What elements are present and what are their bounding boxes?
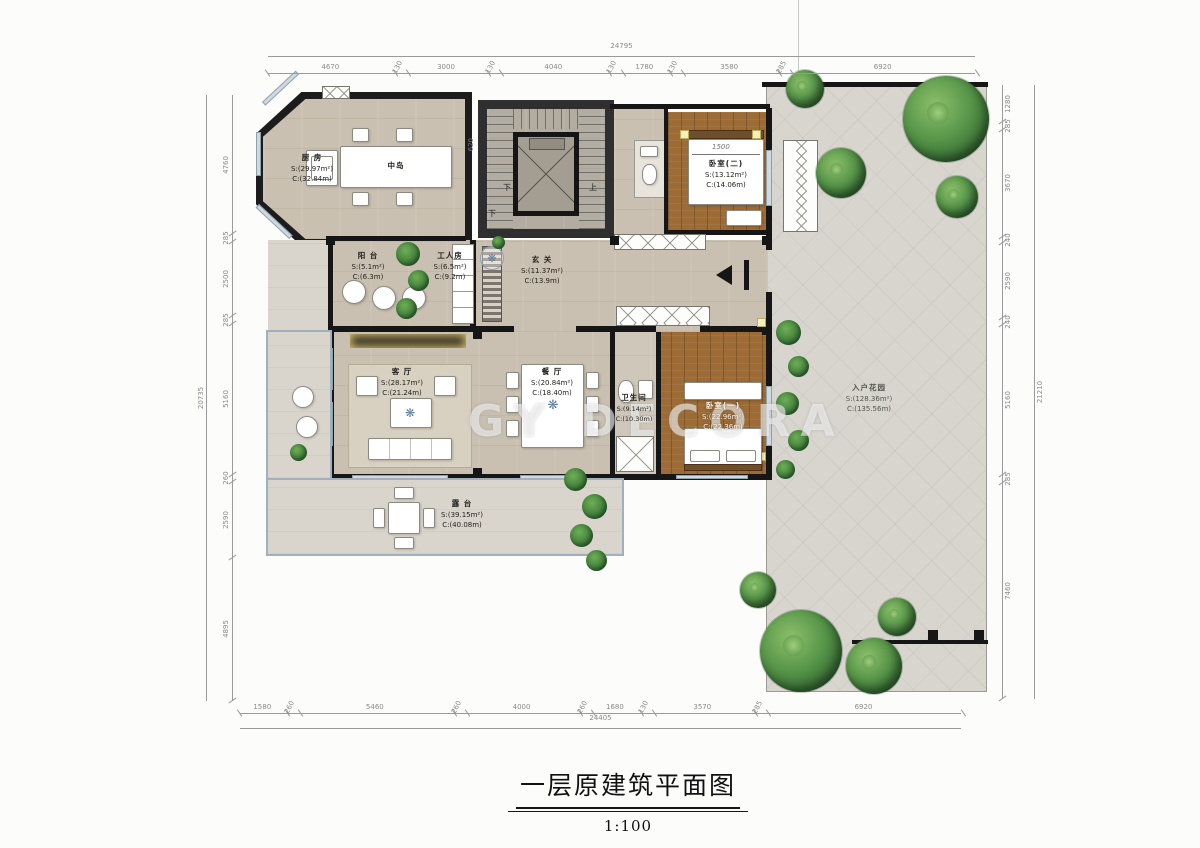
dim-seg: 1580 [240, 698, 285, 713]
stool [396, 128, 413, 142]
room-name: 中岛 [368, 160, 424, 172]
floor-medallion-icon: ❋ [480, 246, 504, 270]
dim-seg: 260 [216, 475, 232, 483]
dim-seg: 285 [777, 58, 790, 73]
column [762, 236, 771, 245]
dim-seg: 6920 [766, 698, 961, 713]
room-label-garden: 入户花园 S:(128.36m²) C:(135.56m) [834, 382, 904, 415]
room-label-bath: 卫生间 S:(9.14m²) C:(10.30m) [610, 392, 658, 424]
dim-seg: 6920 [790, 58, 975, 73]
room-label-kitchen: 厨 房 S:(29.97m²) C:(32.84m) [280, 152, 344, 185]
room-area-c: C:(14.06m) [692, 180, 760, 191]
drawing-scale: 1:100 [508, 817, 748, 835]
outdoor-chair [373, 508, 385, 528]
dim-right-total: 21210 [1034, 85, 1043, 699]
entry-door-bar [744, 260, 749, 290]
room-area-s: S:(9.14m²) [610, 404, 658, 414]
tree-large [903, 76, 989, 162]
dim-seg: 2590 [1003, 243, 1019, 318]
room-name: 餐 厅 [520, 366, 584, 378]
bush [586, 550, 607, 571]
armchair [434, 376, 456, 396]
dim-seg: 7460 [1003, 483, 1019, 699]
floor-plan: 620 780 下 上 下 1500 ❋ [0, 0, 1200, 848]
corner-marker [680, 130, 689, 139]
round-chair [342, 280, 366, 304]
dim-seg: 260 [452, 698, 465, 713]
pouf [296, 416, 318, 438]
room-area-s: S:(128.36m²) [834, 394, 904, 405]
room-area-s: S:(6.5m²) [424, 262, 476, 273]
dim-seg: 1680 [591, 698, 638, 713]
dim-value: 21210 [1036, 381, 1044, 403]
room-area-c: C:(13.9m) [510, 276, 574, 287]
dim-620: 620 [467, 138, 475, 151]
tree [816, 148, 866, 198]
stool [352, 192, 369, 206]
room-area-c: C:(6.3m) [340, 272, 396, 283]
room-area-s: S:(39.15m²) [430, 510, 494, 521]
stair-up-label: 上 [589, 182, 597, 193]
room-area-c: C:(18.40m) [520, 388, 584, 399]
dim-seg: 5160 [1003, 325, 1019, 474]
room-name: 卧室(一) [686, 400, 760, 412]
room-name: 卫生间 [610, 392, 658, 404]
dim-seg: 2590 [216, 482, 232, 558]
medallion-glyph: ❋ [405, 406, 415, 420]
range-hood-hatch [322, 86, 350, 99]
closet-hatch [616, 306, 710, 326]
dim-seg: 260 [285, 698, 298, 713]
room-label-living: 客 厅 S:(28.17m²) C:(21.24m) [370, 366, 434, 399]
table-medallion-icon: ❋ [400, 403, 420, 423]
pillow [726, 450, 756, 462]
stair-down-label: 下 [503, 182, 511, 193]
wall [328, 236, 333, 332]
bush [776, 460, 795, 479]
room-name: 厨 房 [280, 152, 344, 164]
column [326, 236, 335, 245]
dining-chair [586, 372, 599, 389]
wall [332, 326, 478, 332]
room-label-bed1: 卧室(一) S:(22.96m²) C:(22.36m) [686, 400, 760, 433]
column [473, 468, 482, 477]
bed-headboard [684, 464, 762, 471]
gate-post [974, 630, 984, 643]
gate-post [928, 630, 938, 643]
tree [786, 70, 824, 108]
drawing-title: 一层原建筑平面图 [516, 766, 740, 809]
dining-chair [586, 420, 599, 437]
dim-seg: 130 [486, 58, 499, 73]
bed [684, 428, 762, 468]
column [762, 326, 771, 335]
room-name: 卧室(二) [692, 158, 760, 170]
room-label-dining: 餐 厅 S:(20.84m²) C:(18.40m) [520, 366, 584, 399]
outdoor-chair [394, 487, 414, 499]
plant [290, 444, 307, 461]
wall [478, 326, 514, 332]
stool [352, 128, 369, 142]
room-area-c: C:(135.56m) [834, 404, 904, 415]
stool [396, 192, 413, 206]
bedroom1-window [766, 386, 772, 446]
bush [570, 524, 593, 547]
dim-seg: 3000 [406, 58, 486, 73]
bush [788, 356, 809, 377]
dim-seg: 4670 [268, 58, 393, 73]
room-name: 阳 台 [340, 250, 396, 262]
dim-seg: 285 [216, 234, 232, 242]
room-area-s: S:(29.97m²) [280, 164, 344, 175]
title-block: 一层原建筑平面图 1:100 [508, 766, 748, 835]
room-label-maid: 工人房 S:(6.5m²) C:(9.2m) [424, 250, 476, 283]
dim-seg: 3580 [681, 58, 777, 73]
dim-value: 20735 [197, 387, 205, 409]
wall [576, 326, 612, 332]
bush [582, 494, 607, 519]
dresser [726, 210, 762, 226]
room-name: 玄 关 [510, 254, 574, 266]
dim-value: 24405 [589, 715, 611, 723]
dim-seg: 130 [607, 58, 620, 73]
room-label-island: 中岛 [368, 160, 424, 172]
bush [776, 392, 799, 415]
tree [846, 638, 902, 694]
dim-seg: 2500 [216, 242, 232, 315]
pouf [292, 386, 314, 408]
dim-bottom-segments: 1580 260 5460 260 4000 260 1680 130 3570… [240, 698, 961, 714]
room-name: 客 厅 [370, 366, 434, 378]
wall [612, 326, 656, 332]
bush [396, 242, 420, 266]
room-label-foyer: 玄 关 S:(11.37m²) C:(13.9m) [510, 254, 574, 287]
tree [740, 572, 776, 608]
tree [878, 598, 916, 636]
dim-seg: 260 [578, 698, 591, 713]
tree-large [760, 610, 842, 692]
room-label-terrace: 露 台 S:(39.15m²) C:(40.08m) [430, 498, 494, 531]
room-area-c: C:(21.24m) [370, 388, 434, 399]
balcony-floor [268, 240, 330, 332]
room-name: 入户花园 [834, 382, 904, 394]
tv-console [350, 334, 466, 348]
room-area-s: S:(5.1m²) [340, 262, 396, 273]
room-label-balcony: 阳 台 S:(5.1m²) C:(6.3m) [340, 250, 396, 283]
closet-hatch [614, 234, 706, 250]
dim-seg: 4760 [216, 95, 232, 234]
outdoor-table [388, 502, 420, 534]
bush [788, 430, 809, 451]
sink [640, 146, 658, 157]
dim-left-segments: 4760 285 2500 285 5160 260 2590 4895 [216, 95, 233, 701]
elevator-cab [529, 138, 565, 150]
dim-seg: 4000 [465, 698, 578, 713]
dim-seg: 285 [753, 698, 766, 713]
round-chair [372, 286, 396, 310]
dim-right-segments: 1280 285 3670 240 2590 240 5160 285 7460 [1002, 85, 1019, 699]
room-label-bed2: 卧室(二) S:(13.12m²) C:(14.06m) [692, 158, 760, 191]
pillow [690, 450, 720, 462]
room-area-c: C:(22.36m) [686, 422, 760, 433]
room-area-s: S:(13.12m²) [692, 170, 760, 181]
stairs-top-run [513, 109, 579, 129]
bedroom1-window [676, 475, 748, 479]
room-area-c: C:(9.2m) [424, 272, 476, 283]
bedroom2-window [766, 150, 772, 206]
wall [664, 108, 668, 232]
dim-seg: 3570 [652, 698, 753, 713]
dim-seg: 5460 [298, 698, 452, 713]
column [610, 236, 619, 245]
dim-top-segments: 4670 130 3000 130 4040 130 1780 130 3580… [268, 58, 975, 74]
dining-chair [506, 396, 519, 413]
dim-seg: 240 [1003, 318, 1019, 325]
plant [492, 236, 505, 249]
dim-value: 24795 [610, 43, 632, 51]
dim-seg: 3670 [1003, 130, 1019, 236]
dim-seg: 130 [639, 698, 652, 713]
title-underline [508, 811, 748, 812]
dim-seg: 1280 [1003, 85, 1019, 122]
dining-chair [506, 420, 519, 437]
dim-top-total: 24795 [268, 42, 975, 57]
medallion-glyph: ❋ [487, 252, 496, 265]
wall [610, 104, 770, 109]
entry-arrow-icon [716, 265, 732, 285]
dim-seg: 240 [1003, 237, 1019, 244]
wall [332, 236, 466, 241]
pergola-hatch [783, 140, 818, 232]
dining-chair [586, 396, 599, 413]
wardrobe [684, 382, 762, 400]
outdoor-chair [394, 537, 414, 549]
bush [564, 468, 587, 491]
room-name: 工人房 [424, 250, 476, 262]
dim-seg: 285 [216, 316, 232, 324]
dim-seg: 285 [1003, 475, 1019, 483]
stair-down2-label: 下 [488, 208, 496, 219]
room-name: 露 台 [430, 498, 494, 510]
dim-seg: 4895 [216, 558, 232, 701]
dim-seg: 4040 [499, 58, 607, 73]
room-area-c: C:(40.08m) [430, 520, 494, 531]
stairs-right [579, 109, 605, 229]
corner-marker [757, 318, 766, 327]
dim-seg: 130 [393, 58, 406, 73]
room-area-s: S:(28.17m²) [370, 378, 434, 389]
dim-seg: 285 [1003, 122, 1019, 130]
dim-bottom-total: 24405 [240, 714, 961, 729]
kitchen-window [256, 132, 261, 176]
shower [616, 436, 654, 472]
room-area-c: C:(32.84m) [280, 174, 344, 185]
room-area-s: S:(11.37m²) [510, 266, 574, 277]
dim-seg: 130 [668, 58, 681, 73]
corner-marker [752, 130, 761, 139]
column [473, 330, 482, 339]
dim-1500: 1500 [712, 143, 730, 151]
dim-seg: 5160 [216, 324, 232, 475]
dining-chair [506, 372, 519, 389]
toilet [642, 164, 657, 185]
medallion-glyph: ❋ [548, 398, 559, 413]
dim-left-total: 20735 [198, 95, 207, 701]
tree [936, 176, 978, 218]
room-area-s: S:(20.84m²) [520, 378, 584, 389]
dim-line-1500 [692, 154, 760, 155]
dim-seg: 1780 [621, 58, 669, 73]
room-area-c: C:(10.30m) [610, 414, 658, 424]
bush [396, 298, 417, 319]
bush [776, 320, 801, 345]
sofa [368, 438, 452, 460]
room-area-s: S:(22.96m²) [686, 412, 760, 423]
